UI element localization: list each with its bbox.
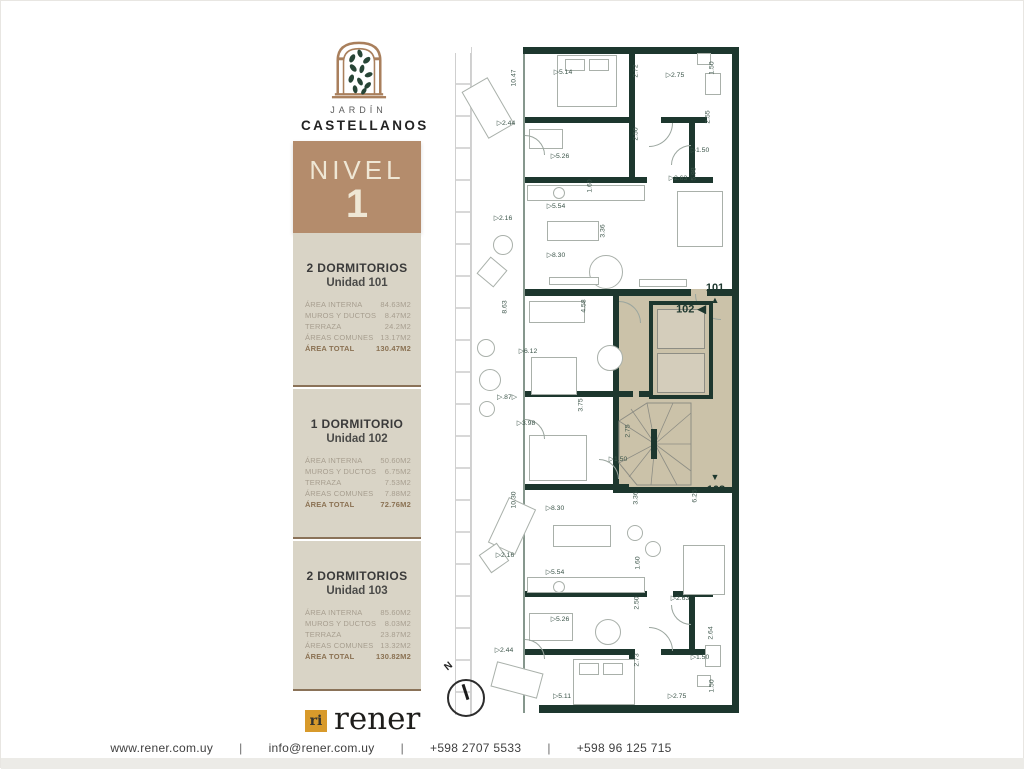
- dimension-label: ▷2.63: [671, 594, 689, 602]
- unit-entrance-marker: 103: [707, 484, 725, 496]
- dimension-label: 2.75: [625, 424, 632, 437]
- dimension-label: 4.58: [581, 299, 588, 312]
- furniture-item: [477, 339, 495, 357]
- dimension-label: 1.60: [635, 556, 642, 569]
- dimension-label: ▷5.26: [551, 615, 569, 623]
- dimension-label: 1.60: [587, 179, 594, 192]
- email-link[interactable]: info@rener.com.uy: [269, 741, 375, 755]
- row-label: MUROS Y DUCTOS: [305, 618, 376, 629]
- dimension-label: 3.36: [600, 224, 607, 237]
- dimension-label: ▷.87▷: [497, 393, 517, 401]
- separator: |: [239, 741, 242, 755]
- row-value: 72.76m2: [380, 499, 411, 510]
- unit-panel-103: 2 DORMITORIOS Unidad 103 ÁREA INTERNA85.…: [293, 541, 421, 691]
- elevator-shaft: [649, 301, 713, 399]
- dimension-label: 2.55: [705, 110, 712, 123]
- furniture-item: [493, 235, 513, 255]
- rener-logo-square-icon: ri: [305, 710, 327, 732]
- dimension-label: 6.25: [692, 489, 699, 502]
- unit-panel-102: 1 DORMITORIO Unidad 102 ÁREA INTERNA50.6…: [293, 389, 421, 539]
- mobile-link[interactable]: +598 96 125 715: [577, 741, 672, 755]
- north-compass-icon: [447, 679, 485, 717]
- unit-entrance-arrow-icon: ▼: [711, 472, 720, 482]
- row-label: TERRAZA: [305, 629, 341, 640]
- bottom-strip: [1, 758, 1024, 769]
- dimension-label: 1.50: [709, 679, 716, 692]
- door-swing-arc: [649, 123, 673, 147]
- row-value: 6.75m2: [385, 466, 411, 477]
- dimension-label: 2.72: [633, 64, 640, 77]
- terrace-boundary-line: [471, 47, 472, 715]
- area-row: ÁREA INTERNA84.63m2: [305, 299, 411, 310]
- compass-north-label: N: [442, 660, 455, 673]
- row-label: ÁREA INTERNA: [305, 607, 362, 618]
- brand-name-top: JARDÍN: [301, 105, 416, 115]
- dimension-label: 1.50: [709, 61, 716, 74]
- unit-subtitle: Unidad 101: [293, 277, 421, 289]
- row-value: 24.2m2: [385, 321, 411, 332]
- row-label: ÁREAS COMUNES: [305, 640, 373, 651]
- furniture-item: [479, 369, 501, 391]
- wall-segment: [525, 484, 629, 490]
- area-row: MUROS Y DUCTOS8.47m2: [305, 310, 411, 321]
- dimension-label: ▷5.14: [554, 68, 572, 76]
- row-label: ÁREAS COMUNES: [305, 488, 373, 499]
- wall-segment: [689, 595, 695, 655]
- dimension-label: 3.75: [578, 398, 585, 411]
- furniture-item: [645, 541, 661, 557]
- unit-title: 2 DORMITORIOS: [293, 569, 421, 583]
- dimension-label: ▷2.75: [666, 71, 684, 79]
- area-total-row: ÁREA TOTAL130.82m2: [305, 651, 411, 662]
- furniture-item: [677, 191, 723, 247]
- row-value: 130.82m2: [376, 651, 411, 662]
- dimension-label: 3.36: [633, 491, 640, 504]
- furniture-item: [527, 577, 645, 593]
- dimension-label: ▷5.11: [553, 692, 571, 700]
- neighbor-building-strip: [455, 53, 471, 715]
- dimension-label: 8.63: [502, 300, 509, 313]
- dimension-label: ▷1.50: [691, 653, 709, 661]
- dimension-label: ▷1.50: [609, 455, 627, 463]
- footer-contact-bar: www.rener.com.uy | info@rener.com.uy | +…: [1, 741, 781, 755]
- area-row: TERRAZA23.87m2: [305, 629, 411, 640]
- row-value: 84.63m2: [380, 299, 411, 310]
- area-row: ÁREA INTERNA50.60m2: [305, 455, 411, 466]
- dimension-label: ▷5.26: [551, 152, 569, 160]
- dimension-label: ▷2.16: [496, 551, 514, 559]
- row-label: ÁREA TOTAL: [305, 343, 354, 354]
- unit-entrance-marker: 101: [706, 282, 724, 294]
- area-row: ÁREAS COMUNES13.17m2: [305, 332, 411, 343]
- elevator-car: [657, 353, 705, 393]
- furniture-item: [553, 187, 565, 199]
- project-logo: JARDÍN CASTELLANOS: [301, 37, 416, 133]
- dimension-label: ▷2.44: [497, 119, 515, 127]
- dimension-label: 2.50: [633, 127, 640, 140]
- furniture-item: [553, 581, 565, 593]
- door-swing-arc: [671, 605, 691, 625]
- dimension-label: 2.50: [634, 596, 641, 609]
- dimension-label: ▷8.30: [547, 251, 565, 259]
- dimension-label: ▷2.16: [494, 214, 512, 222]
- furniture-item: [531, 357, 577, 395]
- floor-plan: 10.47▷5.142.72▷2.751.50▷2.442.50▷5.262.5…: [453, 39, 739, 739]
- row-label: ÁREA TOTAL: [305, 499, 354, 510]
- door-swing-arc: [649, 627, 673, 651]
- unit-subtitle: Unidad 102: [293, 433, 421, 445]
- staircase: [617, 401, 693, 487]
- furniture-item: [705, 73, 721, 95]
- row-value: 8.03m2: [385, 618, 411, 629]
- row-label: ÁREA TOTAL: [305, 651, 354, 662]
- furniture-item: [547, 221, 599, 241]
- dimension-label: ▷5.54: [547, 202, 565, 210]
- row-value: 130.47m2: [376, 343, 411, 354]
- unit-title: 2 DORMITORIOS: [293, 261, 421, 275]
- row-label: ÁREAS COMUNES: [305, 332, 373, 343]
- dimension-label: ▷6.12: [519, 347, 537, 355]
- dimension-label: ▷2.63: [669, 174, 687, 182]
- area-row: ÁREAS COMUNES7.88m2: [305, 488, 411, 499]
- brochure-page: { "brand": {"name_top": "JARDÍN", "name_…: [0, 0, 1024, 768]
- row-value: 13.17m2: [380, 332, 411, 343]
- row-label: MUROS Y DUCTOS: [305, 310, 376, 321]
- furniture-item: [579, 663, 599, 675]
- level-badge: NIVEL 1: [293, 141, 421, 233]
- unit-entrance-arrow-icon: ▲: [711, 295, 720, 305]
- row-value: 8.47m2: [385, 310, 411, 321]
- row-label: TERRAZA: [305, 477, 341, 488]
- rener-logo: ri rener: [305, 699, 420, 735]
- dimension-label: ▷5.54: [546, 568, 564, 576]
- furniture-item: [529, 301, 585, 323]
- wall-segment: [629, 47, 635, 123]
- separator: |: [401, 741, 404, 755]
- wall-segment: [525, 289, 691, 296]
- dimension-label: 10.30: [511, 491, 518, 508]
- brand-name-bottom: CASTELLANOS: [301, 118, 416, 133]
- area-row: MUROS Y DUCTOS8.03m2: [305, 618, 411, 629]
- wall-segment: [732, 47, 739, 713]
- furniture-item: [589, 59, 609, 71]
- row-value: 23.87m2: [380, 629, 411, 640]
- level-number: 1: [346, 188, 368, 220]
- level-label: NIVEL: [309, 155, 404, 186]
- row-value: 7.88m2: [385, 488, 411, 499]
- wall-segment: [539, 705, 739, 713]
- door-swing-arc: [671, 145, 691, 165]
- furniture-item: [549, 277, 599, 285]
- row-value: 7.53m2: [385, 477, 411, 488]
- phone-link[interactable]: +598 2707 5533: [430, 741, 521, 755]
- furniture-item: [479, 401, 495, 417]
- furniture-item: [627, 525, 643, 541]
- unit-subtitle: Unidad 103: [293, 585, 421, 597]
- separator: |: [547, 741, 550, 755]
- area-row: ÁREA INTERNA85.60m2: [305, 607, 411, 618]
- dimension-label: ▷1.50: [691, 146, 709, 154]
- furniture-item: [477, 257, 508, 288]
- area-row: ÁREAS COMUNES13.32m2: [305, 640, 411, 651]
- unit-panel-101: 2 DORMITORIOS Unidad 101 ÁREA INTERNA84.…: [293, 233, 421, 387]
- furniture-item: [639, 279, 687, 287]
- dimension-label: 5.98: [691, 167, 698, 180]
- dimension-label: ▷2.44: [495, 646, 513, 654]
- dimension-label: ▷8.30: [546, 504, 564, 512]
- area-total-row: ÁREA TOTAL72.76m2: [305, 499, 411, 510]
- dimension-label: 10.47: [511, 69, 518, 86]
- dimension-label: 2.73: [634, 653, 641, 666]
- furniture-item: [490, 661, 543, 699]
- compass-needle: [462, 684, 470, 700]
- furniture-item: [683, 545, 725, 595]
- furniture-item: [603, 663, 623, 675]
- rener-logo-wordmark: rener: [334, 704, 420, 735]
- area-row: MUROS Y DUCTOS6.75m2: [305, 466, 411, 477]
- row-label: MUROS Y DUCTOS: [305, 466, 376, 477]
- wall-segment: [525, 117, 635, 123]
- furniture-item: [553, 525, 611, 547]
- area-total-row: ÁREA TOTAL130.47m2: [305, 343, 411, 354]
- area-row: TERRAZA24.2m2: [305, 321, 411, 332]
- row-label: TERRAZA: [305, 321, 341, 332]
- area-row: TERRAZA7.53m2: [305, 477, 411, 488]
- unit-entrance-marker: 102 ◀: [676, 303, 706, 316]
- website-link[interactable]: www.rener.com.uy: [110, 741, 213, 755]
- row-label: ÁREA INTERNA: [305, 299, 362, 310]
- dimension-label: 2.64: [708, 626, 715, 639]
- row-label: ÁREA INTERNA: [305, 455, 362, 466]
- furniture-item: [595, 619, 621, 645]
- row-value: 13.32m2: [380, 640, 411, 651]
- dimension-label: ▷3.98: [517, 419, 535, 427]
- row-value: 85.60m2: [380, 607, 411, 618]
- unit-title: 1 DORMITORIO: [293, 417, 421, 431]
- furniture-item: [597, 345, 623, 371]
- row-value: 50.60m2: [380, 455, 411, 466]
- dimension-label: ▷2.75: [668, 692, 686, 700]
- arch-logo-icon: [330, 37, 388, 99]
- furniture-item: [529, 435, 587, 481]
- door-swing-arc: [525, 639, 545, 659]
